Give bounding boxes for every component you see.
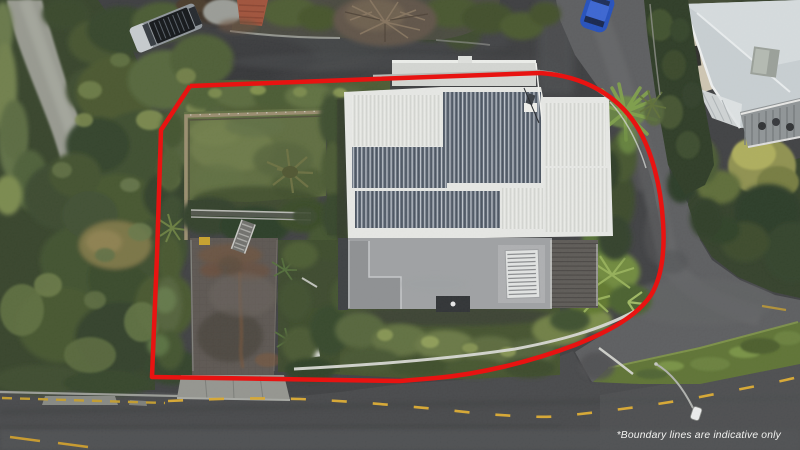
svg-text:*Boundary lines are indicative: *Boundary lines are indicative only: [617, 430, 782, 441]
